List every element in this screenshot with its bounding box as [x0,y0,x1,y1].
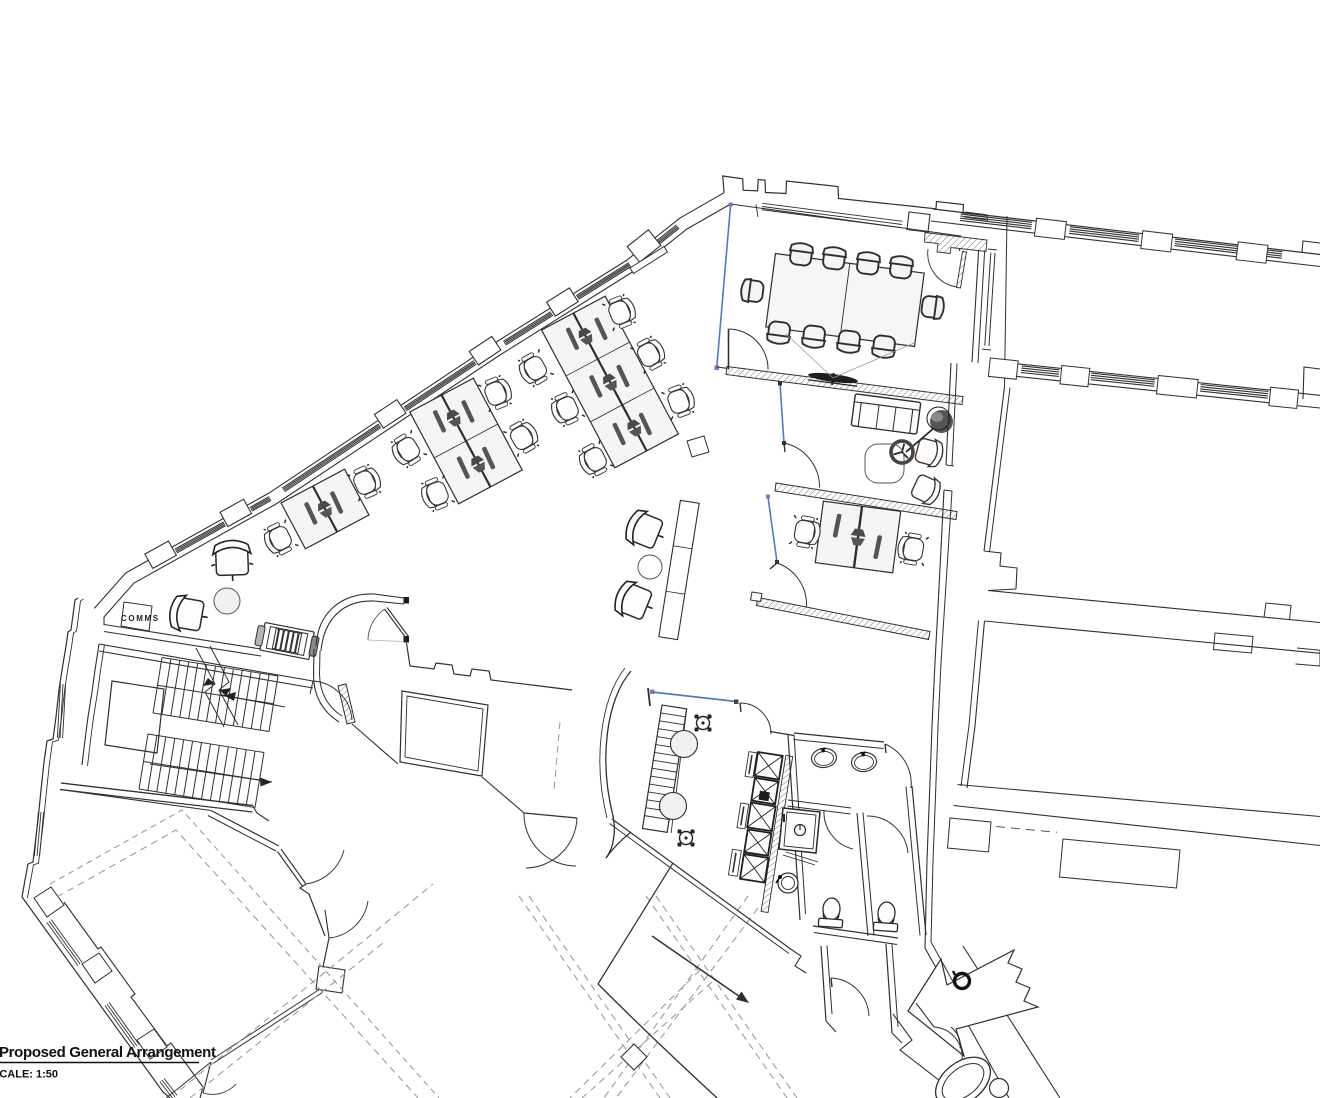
svg-text:SCALE: 1:50: SCALE: 1:50 [0,1069,58,1081]
svg-text:COMMS: COMMS [121,614,160,623]
svg-text:Proposed General Arrangement: Proposed General Arrangement [0,1044,216,1061]
